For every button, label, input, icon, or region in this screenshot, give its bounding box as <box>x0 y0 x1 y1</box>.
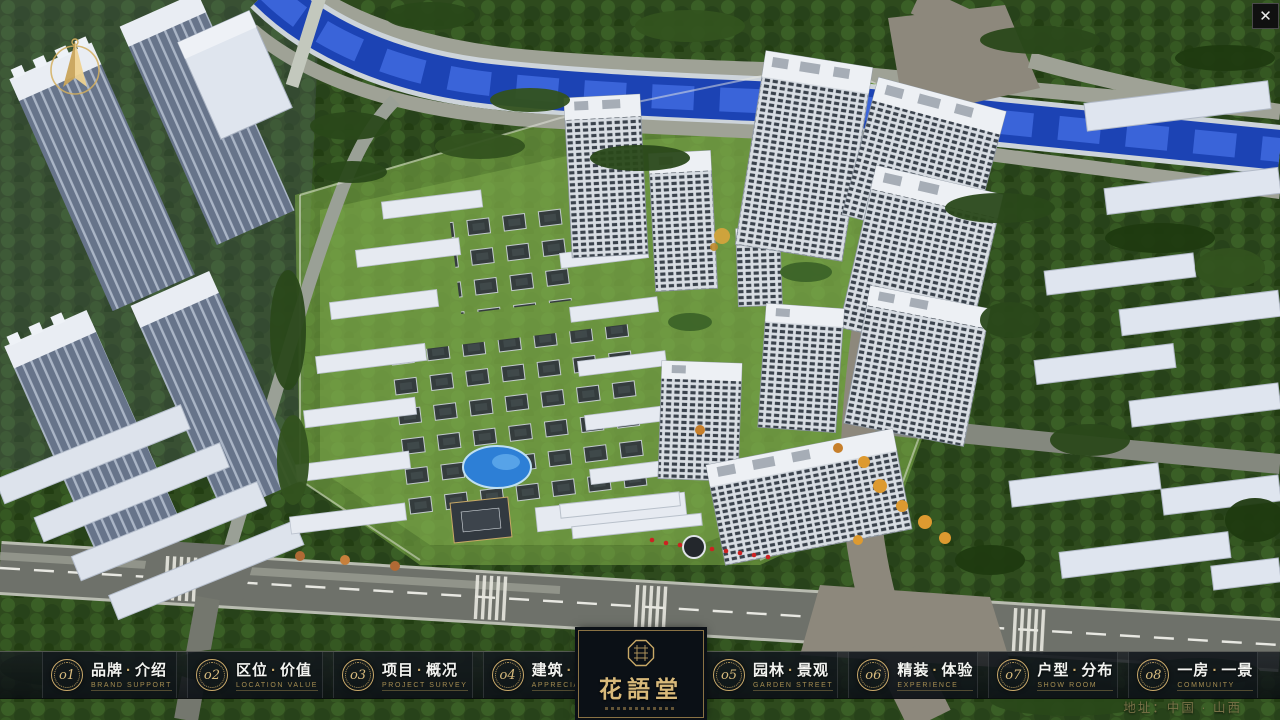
nav-item-location-value[interactable]: o2 区位·价值 LOCATION VALUE <box>187 652 323 698</box>
nav-label-en: EXPERIENCE <box>897 682 973 691</box>
nav-label-zh: 区位·价值 <box>236 659 318 680</box>
logo-tagline <box>605 707 677 710</box>
seal-icon <box>627 639 655 667</box>
nav-label-zh: 项目·概况 <box>382 659 468 680</box>
nav-number-badge: o5 <box>713 659 745 691</box>
nav-group-left: o1 品牌·介绍 BRAND SUPPORT o2 区位·价值 LOCATION… <box>42 652 576 698</box>
close-button[interactable]: ✕ <box>1252 3 1279 29</box>
nav-label-en: GARDEN STREET <box>753 682 833 691</box>
sales-center-app: ✕ o1 品牌·介绍 BRAND SUPPORT o2 区位·价值 LOCATI… <box>0 0 1280 720</box>
address-label: 地址：中国 · 山西 <box>1123 697 1242 716</box>
nav-label-zh: 精装·体验 <box>897 659 973 680</box>
nav-item-project-survey[interactable]: o3 项目·概况 PROJECT SURVEY <box>333 652 473 698</box>
nav-label-zh: 户型·分布 <box>1037 659 1113 680</box>
nav-number-badge: o3 <box>342 659 374 691</box>
site-plan-render <box>0 0 1280 720</box>
nav-number-badge: o1 <box>51 659 83 691</box>
nav-item-garden-landscape[interactable]: o5 园林·景观 GARDEN STREET <box>704 652 838 698</box>
nav-label-en: SHOW ROOM <box>1037 682 1113 691</box>
nav-item-brand-intro[interactable]: o1 品牌·介绍 BRAND SUPPORT <box>42 652 177 698</box>
nav-label-en: PROJECT SURVEY <box>382 682 468 691</box>
nav-group-right: o5 园林·景观 GARDEN STREET o6 精装·体验 EXPERIEN… <box>704 652 1238 698</box>
nav-label-en: BRAND SUPPORT <box>91 682 172 691</box>
nav-number-badge: o7 <box>997 659 1029 691</box>
nav-label-en: COMMUNITY <box>1177 682 1253 691</box>
logo-panel[interactable]: 花語堂 <box>578 630 704 718</box>
nav-item-decor-experience[interactable]: o6 精装·体验 EXPERIENCE <box>848 652 978 698</box>
nav-number-badge: o6 <box>857 659 889 691</box>
nav-number-badge: o4 <box>492 659 524 691</box>
nav-item-floorplan-distribution[interactable]: o7 户型·分布 SHOW ROOM <box>988 652 1118 698</box>
logo-title: 花語堂 <box>599 670 683 704</box>
compass-icon <box>44 32 106 102</box>
nav-label-zh: 一房·一景 <box>1177 659 1253 680</box>
nav-item-room-view[interactable]: o8 一房·一景 COMMUNITY <box>1128 652 1258 698</box>
nav-label-zh: 园林·景观 <box>753 659 833 680</box>
nav-number-badge: o2 <box>196 659 228 691</box>
nav-label-zh: 品牌·介绍 <box>91 659 172 680</box>
nav-label-en: LOCATION VALUE <box>236 682 318 691</box>
nav-number-badge: o8 <box>1137 659 1169 691</box>
